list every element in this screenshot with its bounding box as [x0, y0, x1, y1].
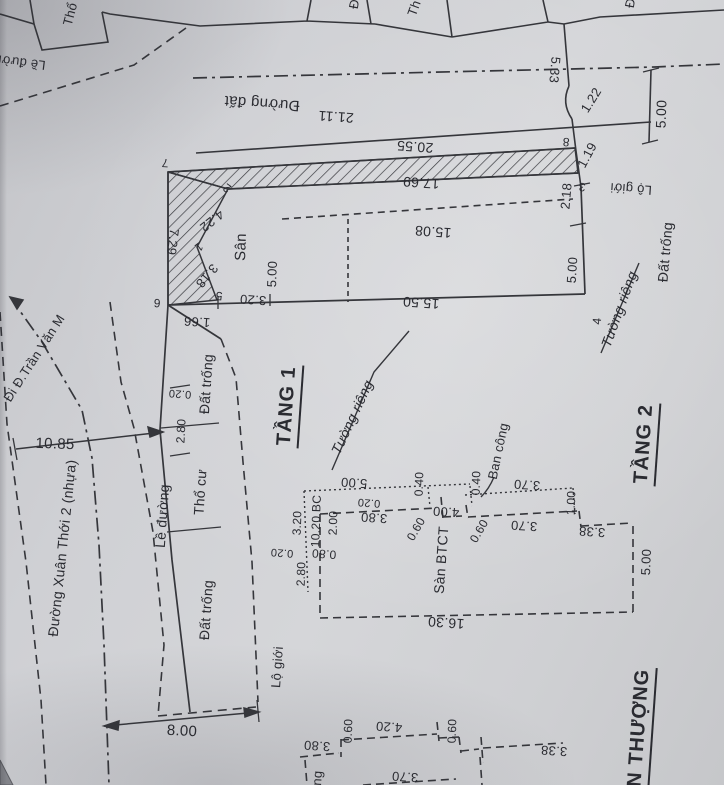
- parcel-boundary-lines: [160, 148, 585, 712]
- dim-0-20-bc: 0.20: [357, 496, 380, 509]
- dim-4-20: 4.20: [375, 720, 402, 735]
- label-lo-gioi-sw: Lộ giới: [269, 646, 285, 689]
- dim-3-80-bottom: 3.80: [303, 739, 330, 754]
- dim-0-60-c: 0.60: [342, 719, 355, 744]
- dim-0-40-a: 0.40: [413, 472, 426, 497]
- dim-5-00-t2: 5.00: [639, 549, 653, 576]
- dim-0-80: 0.80: [311, 547, 336, 561]
- dim-5-00-bc: 5.00: [340, 476, 367, 491]
- dim-0-20-left: 0.20: [270, 546, 293, 559]
- label-lo-gioi-top: Lộ giới: [610, 181, 653, 197]
- dim-3-70-a: 3.70: [513, 478, 540, 493]
- label-san: Sân: [233, 233, 249, 261]
- dim-7-29: 7.29: [165, 228, 181, 256]
- dim-3-70-bottom: 3.70: [391, 770, 418, 785]
- dim-4-00: 4.00: [432, 505, 459, 520]
- vertex-8: 8: [562, 136, 570, 148]
- dim-16-30: 16.30: [427, 615, 464, 632]
- dim-5-33: 5.33: [547, 56, 562, 84]
- dim-10-20-bc: 10.20 BC: [309, 495, 323, 548]
- dim-8-00: 8.00: [166, 723, 197, 740]
- dim-17-69: 17.69: [402, 175, 439, 192]
- dim-3-20-left: 3.20: [291, 511, 304, 536]
- dim-20-55: 20.55: [396, 139, 433, 156]
- dim-2-80-front: 2.80: [174, 418, 187, 443]
- page-corner-shadow: [0, 760, 13, 785]
- dim-3-70-b: 3.70: [510, 519, 537, 534]
- label-dat-trong-nw: Đất trống: [197, 353, 215, 414]
- vertex-7: 7: [161, 157, 169, 169]
- dim-3-38-t2: 3.38: [578, 525, 605, 540]
- vertex-6: 6: [153, 297, 161, 309]
- dim-1-00: 1.00: [565, 491, 578, 516]
- dim-1-66: 1.66: [183, 315, 210, 330]
- dim-2-80-left: 2.80: [295, 562, 308, 587]
- label-tho-cu: Thổ cư: [191, 468, 208, 515]
- dim-15-08: 15.08: [414, 224, 451, 241]
- dimension-lines: [10, 297, 259, 730]
- leader-lines: [332, 263, 639, 497]
- dim-2-00: 2.00: [327, 511, 340, 536]
- label-fragment-ng: ng: [310, 770, 324, 785]
- dim-5-00-road: 5.00: [654, 100, 669, 129]
- label-le-duong-left: Lề đường: [153, 484, 171, 549]
- vertex-4: 4: [591, 317, 604, 325]
- dim-3-20: 3.20: [239, 293, 266, 308]
- dim-5-00-san: 5.00: [265, 261, 279, 288]
- dim-3-80-bc: 3.80: [360, 511, 387, 526]
- dim-5-00-right: 5.00: [565, 256, 580, 283]
- san-thuong-plan-lines: [300, 722, 563, 785]
- vertex-3: 3: [578, 181, 586, 193]
- dim-0-20-front: 0.20: [168, 387, 191, 400]
- neighbor-parcel-lines: [0, 0, 724, 50]
- dim-0-40-b: 0.40: [470, 471, 483, 496]
- dim-3-38-bottom: 3.38: [540, 744, 567, 759]
- vertex-5: 5: [215, 290, 223, 302]
- dim-21-11: 21.11: [318, 109, 354, 125]
- dim-15-50: 15.50: [402, 295, 439, 312]
- survey-drawing-page: Thổ Th Đ Đ Lề đường Đường đất 21.11 20.5…: [0, 0, 724, 785]
- dim-0-60-d: 0.60: [446, 719, 459, 744]
- dim-10-85: 10.85: [35, 436, 75, 452]
- dim-2-18: 2.18: [558, 182, 573, 210]
- label-dat-trong-sw: Đất trống: [197, 579, 215, 640]
